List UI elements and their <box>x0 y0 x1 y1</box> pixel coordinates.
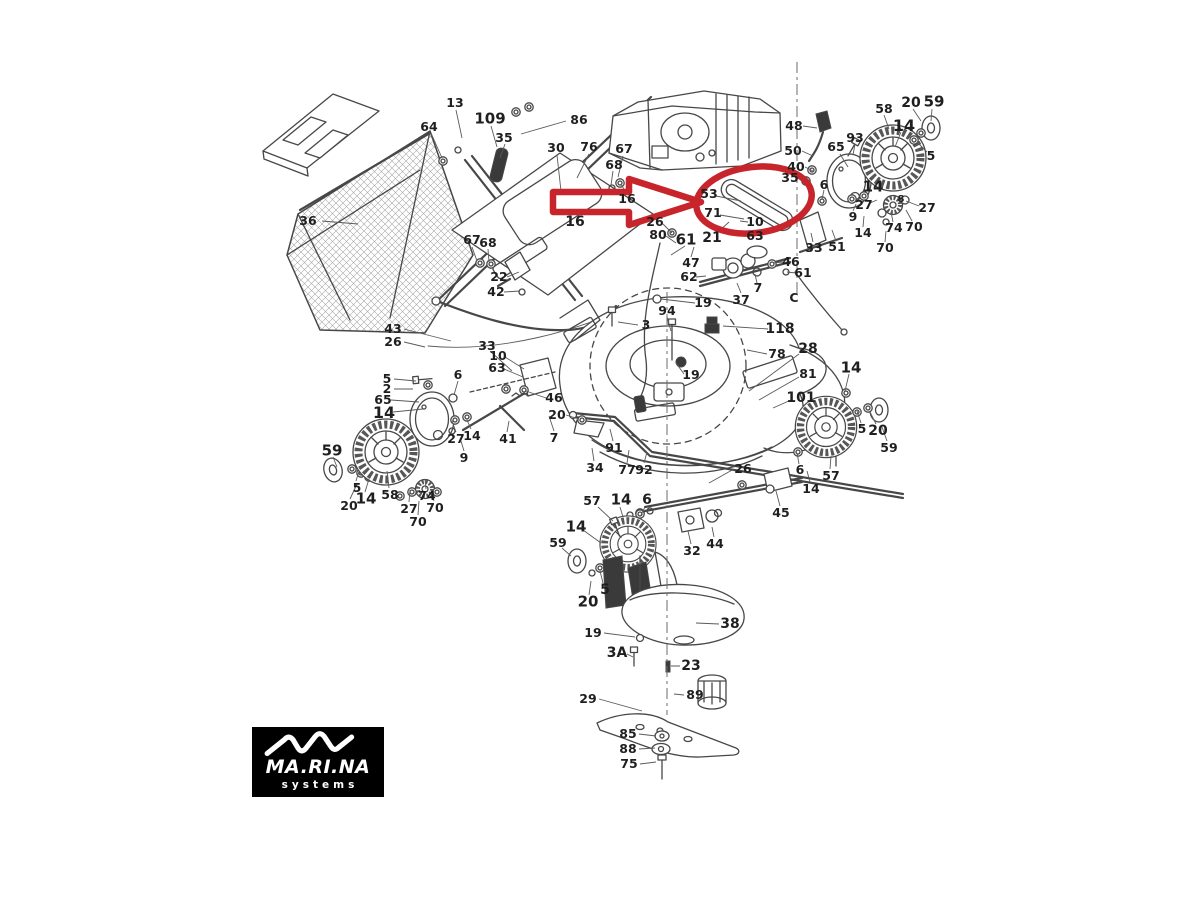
logo-tagline-text: systems <box>282 780 359 791</box>
left-wheel <box>321 375 471 500</box>
logo-brand-text: MA.RI.NA <box>266 758 371 777</box>
engine <box>609 91 781 170</box>
logo-wave-icon <box>262 731 374 757</box>
deck-cover <box>452 153 653 295</box>
exploded-diagram-art <box>0 0 1200 900</box>
right-front-wheel <box>800 111 940 252</box>
gearbox <box>700 246 790 286</box>
rear-skirt-and-blade <box>597 552 744 779</box>
grass-catcher-lid <box>263 94 379 176</box>
parts-diagram-page: 1364109353086763667681616676822424326268… <box>0 0 1200 900</box>
right-wheel <box>795 389 888 458</box>
brand-logo: MA.RI.NA systems <box>252 727 384 797</box>
